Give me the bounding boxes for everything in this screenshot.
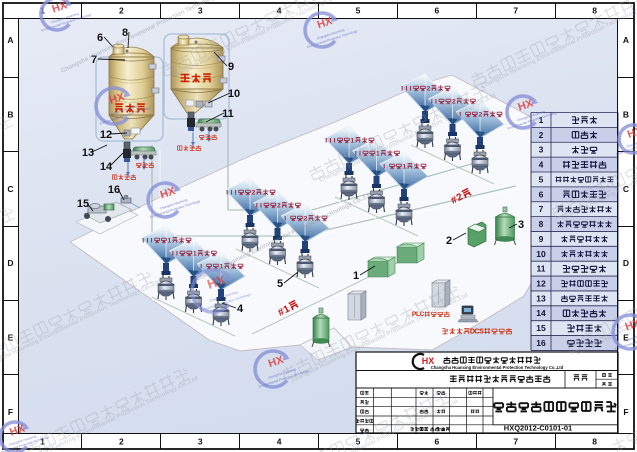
- svg-text:B: B: [623, 110, 629, 120]
- svg-text:I: I: [383, 163, 385, 170]
- svg-text:11: 11: [222, 108, 234, 120]
- svg-text:11: 11: [537, 264, 546, 274]
- svg-text:15: 15: [77, 198, 89, 210]
- svg-text:I: I: [172, 250, 174, 257]
- svg-text:8: 8: [539, 219, 544, 229]
- svg-text:4: 4: [539, 160, 544, 170]
- svg-text:5: 5: [356, 6, 361, 16]
- svg-text:I: I: [256, 202, 258, 209]
- svg-text:6: 6: [539, 189, 544, 199]
- svg-text:A: A: [623, 35, 629, 45]
- svg-text:I: I: [435, 98, 437, 105]
- svg-text:I: I: [355, 150, 357, 157]
- svg-text:I: I: [410, 85, 412, 92]
- svg-text:I: I: [329, 137, 331, 144]
- svg-text:8: 8: [592, 437, 597, 447]
- svg-text:5: 5: [539, 174, 544, 184]
- svg-text:9: 9: [539, 234, 544, 244]
- svg-text:10: 10: [536, 249, 546, 259]
- svg-text:D: D: [7, 258, 13, 268]
- svg-text:12: 12: [536, 279, 546, 289]
- svg-text:7: 7: [513, 6, 518, 16]
- svg-text:I: I: [431, 98, 433, 105]
- svg-text:I: I: [235, 189, 237, 196]
- svg-text:I: I: [230, 189, 232, 196]
- svg-text:1: 1: [353, 270, 359, 282]
- svg-text:I: I: [146, 237, 148, 244]
- svg-text:6: 6: [434, 6, 439, 16]
- svg-text:2: 2: [446, 235, 452, 247]
- svg-text:I: I: [401, 85, 403, 92]
- svg-text:12: 12: [100, 129, 112, 141]
- svg-text:1: 1: [351, 137, 355, 144]
- svg-text:I: I: [260, 202, 262, 209]
- svg-text:I: I: [405, 85, 407, 92]
- svg-text:7: 7: [513, 437, 518, 447]
- svg-text:2: 2: [539, 130, 544, 140]
- svg-text:HXQ2012-C0101-01: HXQ2012-C0101-01: [504, 424, 572, 433]
- svg-text:3: 3: [539, 145, 544, 155]
- svg-text:I: I: [200, 263, 202, 270]
- svg-text:3: 3: [198, 437, 203, 447]
- svg-text:1: 1: [168, 237, 172, 244]
- svg-text:4: 4: [237, 303, 244, 315]
- svg-text:4: 4: [277, 437, 282, 447]
- svg-text:2: 2: [427, 85, 431, 92]
- svg-text:I: I: [151, 237, 153, 244]
- svg-text:I: I: [325, 137, 327, 144]
- svg-text:10: 10: [228, 88, 240, 100]
- svg-text:I: I: [334, 137, 336, 144]
- svg-text:14: 14: [536, 308, 546, 318]
- svg-text:6: 6: [434, 437, 439, 447]
- svg-text:I: I: [226, 189, 228, 196]
- svg-text:I: I: [176, 250, 178, 257]
- svg-text:B: B: [7, 110, 13, 120]
- svg-text:7: 7: [539, 204, 544, 214]
- svg-text:2: 2: [479, 111, 483, 118]
- svg-text:6: 6: [97, 32, 103, 44]
- svg-text:2: 2: [119, 437, 124, 447]
- svg-text:I: I: [142, 237, 144, 244]
- svg-text:9: 9: [228, 61, 234, 73]
- svg-text:I: I: [284, 215, 286, 222]
- svg-text:3: 3: [518, 219, 524, 231]
- svg-text:F: F: [623, 407, 628, 417]
- svg-text:16: 16: [536, 338, 546, 348]
- svg-text:1: 1: [403, 163, 407, 170]
- svg-text:C: C: [7, 184, 13, 194]
- svg-text:2: 2: [252, 189, 256, 196]
- svg-text:F: F: [8, 407, 13, 417]
- svg-text:2: 2: [277, 202, 281, 209]
- svg-text:13: 13: [82, 147, 94, 159]
- svg-text:15: 15: [536, 323, 546, 333]
- svg-text:5: 5: [277, 278, 283, 290]
- svg-text:D: D: [623, 258, 629, 268]
- svg-text:S: S: [479, 326, 484, 335]
- svg-text:14: 14: [100, 161, 113, 173]
- svg-text:A: A: [7, 35, 13, 45]
- svg-text:2: 2: [119, 6, 124, 16]
- svg-text:13: 13: [536, 293, 546, 303]
- svg-text:Changsha Huanxing Environmenta: Changsha Huanxing Environmental Protecti…: [431, 365, 564, 370]
- svg-text:16: 16: [108, 184, 120, 196]
- svg-text:1: 1: [193, 250, 197, 257]
